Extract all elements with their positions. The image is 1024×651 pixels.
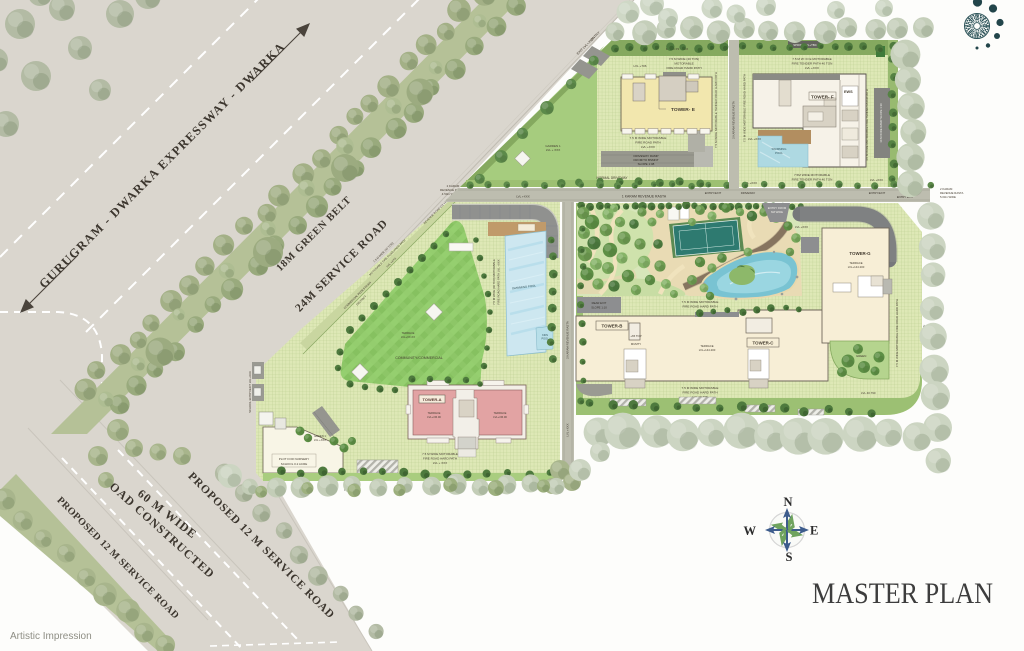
svg-text:LVL+144.200: LVL+144.200 — [848, 265, 865, 269]
svg-text:+65 TOP: +65 TOP — [630, 334, 641, 338]
svg-text:SCHOOL 0.2 ACRE: SCHOOL 0.2 ACRE — [281, 462, 308, 466]
svg-text:7.5 M WIDE MOTORABLE: 7.5 M WIDE MOTORABLE — [682, 300, 719, 304]
svg-text:LVL +XXX: LVL +XXX — [566, 423, 570, 436]
svg-text:E: E — [810, 524, 818, 538]
svg-text:LVL +706: LVL +706 — [634, 64, 647, 68]
svg-text:7.5 M WIDE MOTORABLE: 7.5 M WIDE MOTORABLE — [630, 136, 667, 140]
svg-text:FIRE ROAD HARD PATH LVL +XXX: FIRE ROAD HARD PATH LVL +XXX — [497, 259, 501, 304]
svg-text:POOL: POOL — [775, 151, 783, 155]
svg-text:FIRE ROAD PATH: FIRE ROAD PATH — [635, 141, 661, 145]
svg-text:LVL +XXX: LVL +XXX — [805, 66, 819, 70]
svg-text:N: N — [783, 495, 792, 509]
svg-text:LVL+XX.XX: LVL+XX.XX — [401, 335, 415, 339]
svg-text:2 KARAM REVENUE RASTA: 2 KARAM REVENUE RASTA — [566, 321, 570, 359]
svg-text:7.5 M WIDE (40 TON): 7.5 M WIDE (40 TON) — [669, 57, 699, 61]
svg-text:REAR EXIT: REAR EXIT — [592, 301, 607, 305]
svg-text:TERRACE: TERRACE — [428, 411, 441, 415]
svg-text:FIRE TENDER PATH 40 TON: FIRE TENDER PATH 40 TON — [792, 62, 833, 66]
svg-text:LVL+144.200: LVL+144.200 — [699, 348, 716, 352]
svg-text:7.5 M WIDE MOTORABLE FIRE R: 7.5 M WIDE MOTORABLE FIRE ROAD HARD PATH — [743, 74, 747, 142]
svg-text:MASTER PLAN: MASTER PLAN — [812, 577, 993, 610]
svg-text:FIRE ROAD HARD PATH: FIRE ROAD HARD PATH — [423, 457, 457, 461]
svg-text:EWS: EWS — [844, 90, 853, 94]
svg-text:7.5M WIDE MOTORABLE: 7.5M WIDE MOTORABLE — [794, 173, 830, 177]
svg-text:LVL +XXX: LVL +XXX — [314, 438, 326, 442]
svg-text:SCHOOL ENTRY/EXIT LVL+XXX: SCHOOL ENTRY/EXIT LVL+XXX — [248, 371, 252, 413]
svg-text:TERRACE: TERRACE — [494, 411, 507, 415]
svg-text:GREEN 1: GREEN 1 — [314, 434, 326, 438]
svg-text:TOWER-A: TOWER-A — [422, 397, 441, 402]
svg-text:TOWER-C: TOWER-C — [753, 341, 775, 346]
svg-text:7.5 M WIDE MOTORABLE FIRE ROAD: 7.5 M WIDE MOTORABLE FIRE ROAD HARD PATH — [895, 299, 899, 367]
svg-text:PLOT FOR NURSERY: PLOT FOR NURSERY — [279, 457, 309, 461]
svg-text:LVL+/36.00: LVL+/36.00 — [493, 415, 507, 419]
svg-text:TOWER- F: TOWER- F — [811, 95, 834, 100]
svg-text:ENTRY/EXIT: ENTRY/EXIT — [869, 191, 886, 195]
svg-text:7.5 M W I D E MOTORABLE: 7.5 M W I D E MOTORABLE — [792, 57, 831, 61]
svg-text:W: W — [744, 524, 757, 538]
svg-text:TOWER-G: TOWER-G — [849, 251, 871, 256]
svg-text:S: S — [786, 550, 793, 564]
svg-text:TOWER-B: TOWER-B — [602, 324, 623, 329]
svg-text:7.5 M WIDE MOTORABLE: 7.5 M WIDE MOTORABLE — [682, 386, 719, 390]
svg-text:5.03m WIDE: 5.03m WIDE — [940, 195, 956, 199]
svg-text:FIRE TENDER PATH 40 TON: FIRE TENDER PATH 40 TON — [792, 178, 833, 182]
svg-text:FIRE ROAD HARD PATH: FIRE ROAD HARD PATH — [682, 305, 717, 309]
svg-text:LVL +XXX: LVL +XXX — [748, 137, 761, 141]
svg-text:ENTRY/EXIT: ENTRY/EXIT — [705, 191, 722, 195]
svg-text:COMMUNITY/COMMERCIAL: COMMUNITY/COMMERCIAL — [395, 356, 443, 360]
svg-text:SLOPE 1:08: SLOPE 1:08 — [638, 162, 655, 166]
svg-text:6M WIDE: 6M WIDE — [771, 210, 783, 214]
svg-text:LVL +XXX: LVL +XXX — [516, 195, 530, 199]
svg-text:TERRACE: TERRACE — [402, 331, 415, 335]
svg-text:SLOPE 1:10: SLOPE 1:10 — [591, 306, 607, 310]
svg-text:LVL 40.790: LVL 40.790 — [861, 391, 876, 395]
svg-text:LVL + XXX: LVL + XXX — [433, 461, 447, 465]
svg-text:TOWER- E: TOWER- E — [671, 107, 696, 113]
svg-text:1 KARAM REVENUE RASTA: 1 KARAM REVENUE RASTA — [622, 195, 667, 199]
svg-text:7.5 M WIDE MOTORABLE TENDER RO: 7.5 M WIDE MOTORABLE TENDER ROAD HARD PA… — [714, 72, 718, 148]
svg-text:LVL + XXX: LVL + XXX — [546, 148, 560, 152]
svg-text:Artistic Impression: Artistic Impression — [10, 631, 92, 642]
svg-text:2 KARAM REVENUE RASTA: 2 KARAM REVENUE RASTA — [732, 101, 736, 139]
svg-text:FIRE ROAD HARD PATH: FIRE ROAD HARD PATH — [666, 66, 701, 70]
svg-text:GREEN: GREEN — [856, 354, 866, 358]
svg-text:FIRE ROAD HARD PATH: FIRE ROAD HARD PATH — [682, 391, 717, 395]
svg-text:DRIVEWAY: DRIVEWAY — [741, 191, 756, 195]
svg-text:MOTORABLE: MOTORABLE — [674, 62, 693, 66]
svg-text:10 M WIDE RAMP SLOPE 1:10: 10 M WIDE RAMP SLOPE 1:10 — [879, 103, 883, 143]
svg-text:7.5 M WIDE MOTORABLE: 7.5 M WIDE MOTORABLE — [422, 452, 458, 456]
svg-text:LVL+/36.00: LVL+/36.00 — [427, 415, 441, 419]
svg-text:4.5 M WIDE MOTORABLE FIRE TEND: 4.5 M WIDE MOTORABLE FIRE TENDER ROAD PA… — [865, 89, 869, 161]
svg-text:LVL +XXX: LVL +XXX — [641, 145, 655, 149]
svg-text:LVL +XXX: LVL +XXX — [795, 225, 808, 229]
svg-text:MUMTY: MUMTY — [631, 342, 641, 346]
svg-text:7.5 M WIDE (40 TON) MOTORABL: 7.5 M WIDE (40 TON) MOTORABLE — [492, 259, 496, 305]
svg-text:LVL +XXX: LVL +XXX — [870, 178, 883, 182]
